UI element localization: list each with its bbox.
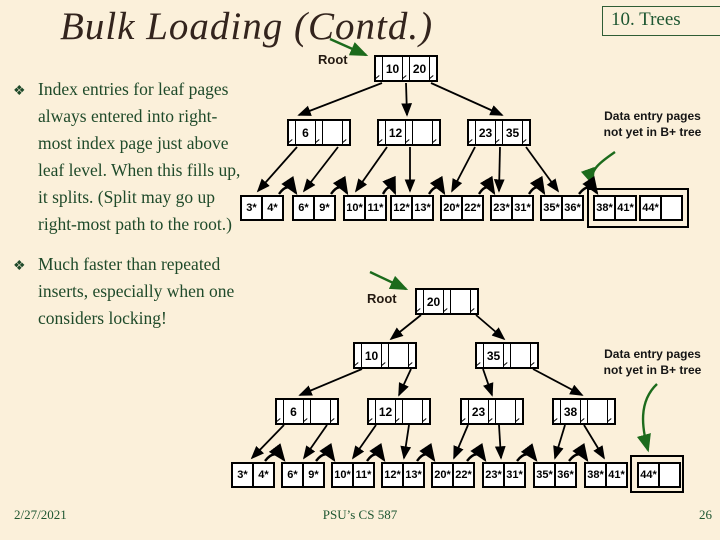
pointer-cell xyxy=(369,400,376,423)
leaf-page: 20* 22* xyxy=(431,462,475,488)
note-before: Data entry pages not yet in B+ tree xyxy=(585,108,720,140)
pointer-cell xyxy=(406,121,413,144)
note-line: Data entry pages xyxy=(585,346,720,362)
key-cell xyxy=(511,344,531,367)
pointer-cell xyxy=(376,57,383,80)
key-cell xyxy=(389,344,409,367)
bullet-list: ❖ Index entries for leaf pages always en… xyxy=(13,76,245,332)
data-entry: 31* xyxy=(513,197,532,219)
key-cell: 12 xyxy=(386,121,406,144)
leaf-page: 35* 36* xyxy=(540,195,584,221)
slide: Bulk Loading (Contd.) 10. Trees ❖ Index … xyxy=(0,0,720,540)
key-cell xyxy=(311,400,331,423)
pointer-cell xyxy=(496,121,503,144)
leaf-page: 12* 13* xyxy=(390,195,434,221)
data-entry: 9* xyxy=(304,464,323,486)
data-entry: 11* xyxy=(354,464,373,486)
pointer-cell xyxy=(289,121,296,144)
data-entry: 22* xyxy=(454,464,473,486)
data-entry: 41* xyxy=(607,464,626,486)
key-cell xyxy=(403,400,423,423)
pointer-cell xyxy=(462,400,469,423)
key-cell xyxy=(413,121,433,144)
data-entry: 35* xyxy=(535,464,556,486)
data-entry: 41* xyxy=(616,197,635,219)
key-cell: 10 xyxy=(362,344,382,367)
footer-page-number: 26 xyxy=(699,507,712,523)
data-entry: 11* xyxy=(366,197,385,219)
key-cell: 10 xyxy=(383,57,403,80)
data-entry: 10* xyxy=(345,197,366,219)
pointer-cell xyxy=(489,400,496,423)
leaf-page: 35* 36* xyxy=(533,462,577,488)
pointer-cell xyxy=(444,290,451,313)
data-entry: 22* xyxy=(463,197,482,219)
diamond-bullet-icon: ❖ xyxy=(13,76,38,105)
pointer-cell xyxy=(331,400,337,423)
key-cell: 38 xyxy=(561,400,581,423)
pointer-cell xyxy=(433,121,439,144)
leaf-page: 6* 9* xyxy=(281,462,325,488)
key-cell xyxy=(323,121,343,144)
data-entry: 13* xyxy=(404,464,423,486)
key-cell xyxy=(451,290,471,313)
footer-course: PSU’s CS 587 xyxy=(0,507,720,523)
leaf-page: 3* 4* xyxy=(231,462,275,488)
index-node-10-after: 10 xyxy=(353,342,417,369)
data-entry: 20* xyxy=(433,464,454,486)
chapter-tag: 10. Trees xyxy=(602,6,720,36)
data-entry: 12* xyxy=(383,464,404,486)
pointer-cell xyxy=(316,121,323,144)
index-node-23-35-before: 23 35 xyxy=(467,119,531,146)
bullet-text: Much faster than repeated inserts, espec… xyxy=(38,251,243,332)
pending-leaf-page: 44* xyxy=(637,462,681,488)
data-entry: 12* xyxy=(392,197,413,219)
data-entry: 10* xyxy=(333,464,354,486)
key-cell xyxy=(496,400,516,423)
pointer-cell xyxy=(531,344,537,367)
key-cell: 6 xyxy=(296,121,316,144)
note-line: not yet in B+ tree xyxy=(585,124,720,140)
pointer-cell xyxy=(469,121,476,144)
pointer-cell xyxy=(396,400,403,423)
pointer-cell xyxy=(423,400,429,423)
pending-leaf-page: 44* xyxy=(639,195,683,221)
data-entry: 36* xyxy=(563,197,582,219)
tree-after-sibling-links xyxy=(265,454,587,461)
root-arrow-after xyxy=(370,272,406,289)
slide-title: Bulk Loading (Contd.) xyxy=(60,4,480,49)
data-entry: 44* xyxy=(639,464,660,486)
index-node-12-before: 12 xyxy=(377,119,441,146)
data-entry: 3* xyxy=(233,464,254,486)
pointer-cell xyxy=(417,290,424,313)
pending-leaf-page: 38* 41* xyxy=(593,195,637,221)
pointer-cell xyxy=(382,344,389,367)
bullet-text: Index entries for leaf pages always ente… xyxy=(38,76,243,238)
pointer-cell xyxy=(430,57,436,80)
index-node-6-after: 6 xyxy=(275,398,339,425)
leaf-page: 23* 31* xyxy=(490,195,534,221)
diamond-bullet-icon: ❖ xyxy=(13,251,38,280)
data-entry: 6* xyxy=(294,197,315,219)
data-entry: 23* xyxy=(492,197,513,219)
data-entry xyxy=(662,197,681,219)
pointer-cell xyxy=(516,400,522,423)
leaf-page: 3* 4* xyxy=(240,195,284,221)
leaf-page: 12* 13* xyxy=(381,462,425,488)
data-entry: 44* xyxy=(641,197,662,219)
key-cell: 20 xyxy=(424,290,444,313)
leaf-page: 23* 31* xyxy=(482,462,526,488)
data-entry: 31* xyxy=(505,464,524,486)
note-line: not yet in B+ tree xyxy=(585,362,720,378)
pointer-cell xyxy=(523,121,529,144)
pointer-cell xyxy=(554,400,561,423)
pointer-cell xyxy=(581,400,588,423)
bullet-item: ❖ Much faster than repeated inserts, esp… xyxy=(13,251,245,332)
data-entry: 4* xyxy=(263,197,282,219)
pointer-cell xyxy=(608,400,614,423)
root-label-after: Root xyxy=(367,291,397,306)
data-entry: 9* xyxy=(315,197,334,219)
tree-before-sibling-links xyxy=(279,187,597,194)
key-cell: 23 xyxy=(469,400,489,423)
pointer-cell xyxy=(277,400,284,423)
note-line: Data entry pages xyxy=(585,108,720,124)
pointer-cell xyxy=(343,121,349,144)
pointer-cell xyxy=(304,400,311,423)
data-entry: 13* xyxy=(413,197,432,219)
key-cell: 35 xyxy=(484,344,504,367)
index-node-12-after: 12 xyxy=(367,398,431,425)
pointer-cell xyxy=(477,344,484,367)
key-cell: 12 xyxy=(376,400,396,423)
data-entry: 23* xyxy=(484,464,505,486)
pointer-cell xyxy=(355,344,362,367)
data-entry: 3* xyxy=(242,197,263,219)
key-cell: 35 xyxy=(503,121,523,144)
data-entry: 20* xyxy=(442,197,463,219)
index-node-root-after: 20 xyxy=(415,288,479,315)
index-node-35-after: 35 xyxy=(475,342,539,369)
note-arrow-after xyxy=(643,384,657,450)
root-label-before: Root xyxy=(318,52,348,67)
bullet-item: ❖ Index entries for leaf pages always en… xyxy=(13,76,245,238)
note-after: Data entry pages not yet in B+ tree xyxy=(585,346,720,378)
data-entry xyxy=(660,464,679,486)
data-entry: 4* xyxy=(254,464,273,486)
leaf-page: 38* 41* xyxy=(584,462,628,488)
leaf-page: 10* 11* xyxy=(331,462,375,488)
pointer-cell xyxy=(471,290,477,313)
data-entry: 6* xyxy=(283,464,304,486)
data-entry: 35* xyxy=(542,197,563,219)
pointer-cell xyxy=(409,344,415,367)
index-node-23-after: 23 xyxy=(460,398,524,425)
data-entry: 38* xyxy=(595,197,616,219)
pointer-cell xyxy=(403,57,410,80)
leaf-page: 20* 22* xyxy=(440,195,484,221)
index-node-38-after: 38 xyxy=(552,398,616,425)
note-arrow-before xyxy=(592,152,615,184)
pointer-cell xyxy=(379,121,386,144)
key-cell: 20 xyxy=(410,57,430,80)
tree-after-pointers xyxy=(252,315,604,458)
leaf-page: 6* 9* xyxy=(292,195,336,221)
data-entry: 36* xyxy=(556,464,575,486)
data-entry: 38* xyxy=(586,464,607,486)
key-cell: 23 xyxy=(476,121,496,144)
index-node-6-before: 6 xyxy=(287,119,351,146)
leaf-page: 10* 11* xyxy=(343,195,387,221)
index-node-root-before: 10 20 xyxy=(374,55,438,82)
key-cell xyxy=(588,400,608,423)
pointer-cell xyxy=(504,344,511,367)
key-cell: 6 xyxy=(284,400,304,423)
